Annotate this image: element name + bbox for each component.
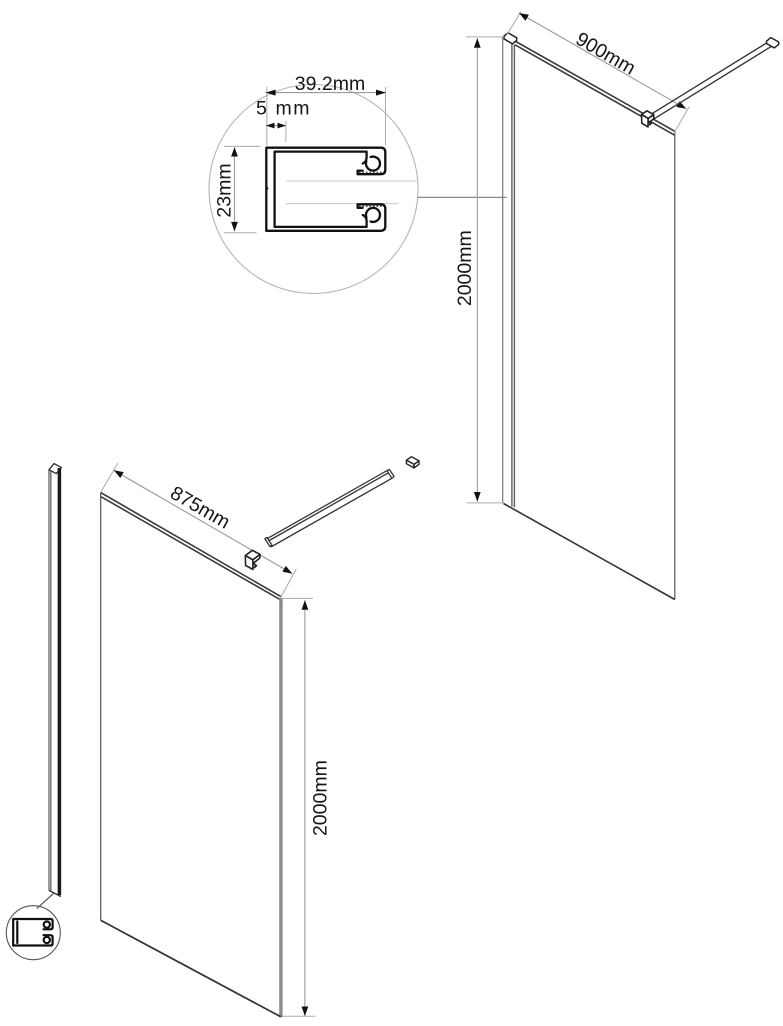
svg-text:2000mm: 2000mm: [309, 760, 331, 836]
svg-text:2000mm: 2000mm: [454, 230, 476, 306]
svg-text:23mm: 23mm: [214, 163, 236, 217]
svg-text:39.2mm: 39.2mm: [295, 73, 365, 95]
svg-text:5 mm: 5 mm: [256, 98, 311, 120]
